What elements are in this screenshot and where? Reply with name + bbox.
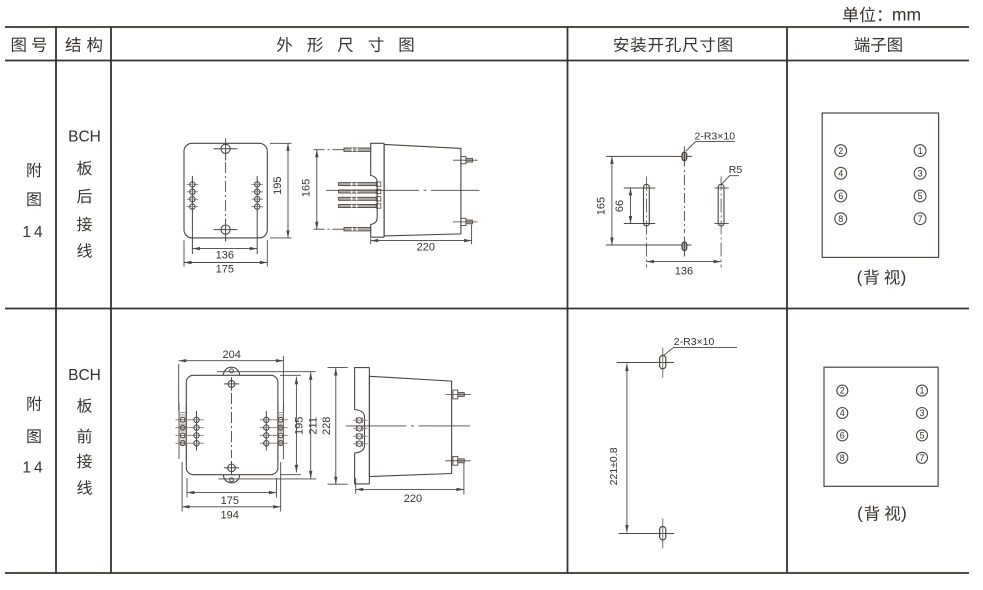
svg-text:1: 1 — [919, 386, 924, 396]
svg-text:195: 195 — [272, 177, 284, 195]
svg-text:175: 175 — [221, 495, 239, 507]
svg-text:6: 6 — [838, 191, 843, 201]
svg-text:): ) — [901, 268, 907, 287]
svg-text:14: 14 — [22, 224, 45, 241]
svg-text:204: 204 — [223, 349, 241, 361]
svg-text:165: 165 — [300, 179, 312, 197]
svg-text:(: ( — [857, 504, 863, 523]
svg-text:165: 165 — [595, 197, 607, 215]
svg-text:220: 220 — [404, 493, 422, 505]
svg-text:2-R3×10: 2-R3×10 — [674, 336, 715, 348]
svg-text:195: 195 — [293, 417, 305, 435]
svg-text:1: 1 — [918, 146, 923, 156]
svg-text:221±0.8: 221±0.8 — [608, 447, 620, 485]
svg-text:2-R3×10: 2-R3×10 — [695, 130, 736, 142]
svg-text:R5: R5 — [729, 164, 743, 176]
svg-text:66: 66 — [614, 200, 626, 212]
svg-text:136: 136 — [675, 266, 693, 278]
svg-text:BCH: BCH — [68, 129, 101, 146]
svg-text:175: 175 — [216, 263, 234, 275]
svg-text:136: 136 — [216, 249, 234, 261]
svg-text:8: 8 — [838, 214, 843, 224]
svg-text:2: 2 — [838, 146, 843, 156]
svg-text:mm: mm — [892, 5, 921, 25]
svg-text:8: 8 — [840, 453, 845, 463]
svg-text:3: 3 — [919, 408, 924, 418]
svg-text:211: 211 — [308, 417, 320, 435]
svg-text:228: 228 — [321, 417, 333, 435]
svg-text:): ) — [901, 504, 907, 523]
svg-text:194: 194 — [221, 509, 239, 521]
svg-text:6: 6 — [840, 431, 845, 441]
svg-text:7: 7 — [918, 214, 923, 224]
svg-text:7: 7 — [919, 453, 924, 463]
svg-text:BCH: BCH — [68, 367, 101, 384]
svg-text:3: 3 — [918, 169, 923, 179]
svg-text:4: 4 — [838, 169, 843, 179]
svg-text:14: 14 — [22, 460, 45, 477]
svg-text:2: 2 — [840, 386, 845, 396]
svg-text:(: ( — [857, 268, 863, 287]
svg-text:4: 4 — [840, 408, 845, 418]
svg-text:5: 5 — [918, 191, 923, 201]
svg-text:220: 220 — [417, 241, 435, 253]
svg-text:5: 5 — [919, 431, 924, 441]
